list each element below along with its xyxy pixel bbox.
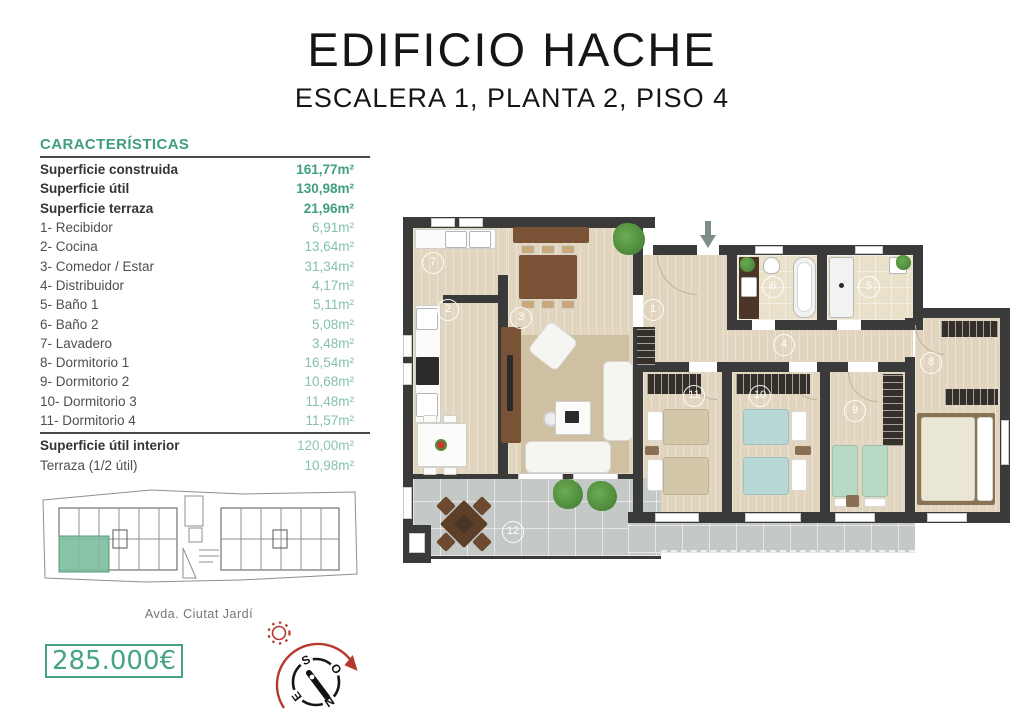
room-marker-11: 11 — [683, 385, 705, 407]
window — [431, 218, 455, 227]
characteristics-row: 6- Baño 25,08m² — [40, 314, 370, 333]
bath-sink — [741, 277, 757, 297]
brochure-page: EDIFICIO HACHE ESCALERA 1, PLANTA 2, PIS… — [0, 0, 1024, 723]
bookshelf — [945, 389, 998, 405]
row-label: 1- Recibidor — [40, 220, 113, 235]
window — [745, 513, 801, 522]
bed — [743, 409, 789, 445]
characteristics-row: 10- Dormitorio 311,48m² — [40, 392, 370, 411]
plant — [740, 257, 755, 272]
row-label: 4- Distribuidor — [40, 278, 124, 293]
chair — [443, 415, 457, 423]
window — [927, 513, 967, 522]
bathtub-inner — [797, 262, 812, 312]
row-value: 5,08m² — [312, 317, 370, 332]
header: EDIFICIO HACHE ESCALERA 1, PLANTA 2, PIS… — [0, 0, 1024, 114]
wall — [820, 372, 830, 522]
room-marker-8: 8 — [920, 352, 942, 374]
wall — [905, 318, 915, 325]
compass-drawing: S O N E — [262, 620, 362, 720]
wall — [722, 372, 732, 522]
row-value: 10,68m² — [304, 374, 370, 389]
window — [403, 363, 412, 385]
bed-pillow — [647, 411, 663, 441]
chair — [561, 245, 575, 254]
row-value: 11,57m² — [305, 413, 370, 428]
row-label: 6- Baño 2 — [40, 317, 99, 332]
row-value: 4,17m² — [312, 278, 370, 293]
window — [403, 487, 412, 519]
terrace-door — [573, 473, 618, 480]
chair — [423, 415, 437, 423]
room-marker-9: 9 — [844, 400, 866, 422]
washer — [445, 231, 467, 248]
row-label: Superficie construida — [40, 162, 178, 177]
chair — [541, 300, 555, 309]
washer — [469, 231, 491, 248]
plant — [587, 481, 617, 511]
wall — [775, 320, 837, 330]
terrace-door — [518, 473, 563, 480]
chair — [541, 245, 555, 254]
corridor-floor — [727, 330, 913, 362]
characteristics-row: Superficie útil interior120,00m² — [40, 436, 370, 455]
row-value: 11,48m² — [305, 394, 370, 409]
room-marker-4: 4 — [773, 334, 795, 356]
fruit-bowl — [435, 439, 447, 451]
row-label: Superficie útil interior — [40, 438, 180, 453]
room-marker-5: 5 — [858, 276, 880, 298]
characteristics-rows: Superficie construida161,77m²Superficie … — [40, 160, 370, 430]
fridge — [416, 308, 438, 330]
bed-pillow — [791, 459, 807, 491]
row-label: 9- Dormitorio 2 — [40, 374, 129, 389]
wall — [1000, 308, 1010, 523]
characteristics-row: 3- Comedor / Estar31,34m² — [40, 256, 370, 275]
bed — [832, 445, 858, 497]
wall — [618, 474, 633, 479]
floor-plan: 123456789101112 — [403, 215, 1015, 567]
characteristics-row: Superficie construida161,77m² — [40, 160, 370, 179]
row-label: 5- Baño 1 — [40, 297, 99, 312]
terrace-edge-wall — [403, 556, 661, 559]
window — [1001, 420, 1009, 465]
laptop — [565, 411, 579, 423]
characteristics-row: 1- Recibidor6,91m² — [40, 218, 370, 237]
shower-drain — [839, 283, 844, 288]
bed — [663, 457, 709, 495]
row-value: 10,98m² — [304, 458, 370, 473]
characteristics-row: 9- Dormitorio 210,68m² — [40, 372, 370, 391]
row-label: Superficie útil — [40, 181, 129, 196]
row-value: 6,91m² — [312, 220, 370, 235]
wall — [653, 245, 697, 255]
row-value: 161,77m² — [296, 162, 370, 177]
window — [835, 513, 875, 522]
wardrobe — [736, 374, 810, 394]
compass: S O N E — [262, 620, 362, 720]
row-value: 130,98m² — [296, 181, 370, 196]
row-label: Terraza (1/2 útil) — [40, 458, 138, 473]
price-tag: 285.000€ — [45, 644, 183, 678]
characteristics-row: 7- Lavadero3,48m² — [40, 334, 370, 353]
chair — [521, 245, 535, 254]
toilet — [763, 257, 780, 274]
wall — [727, 320, 752, 330]
hall-bookshelf — [637, 327, 655, 365]
highlighted-unit — [59, 536, 109, 572]
chair — [423, 467, 437, 475]
room-marker-10: 10 — [749, 385, 771, 407]
wall — [913, 308, 1010, 318]
double-bed — [921, 417, 975, 501]
entrance-arrowhead-icon — [700, 235, 716, 248]
row-label: 11- Dormitorio 4 — [40, 413, 136, 428]
sun-rays-icon — [269, 623, 290, 644]
nightstand — [846, 495, 859, 507]
characteristics-row: Superficie útil130,98m² — [40, 179, 370, 198]
page-subtitle: ESCALERA 1, PLANTA 2, PISO 4 — [0, 83, 1024, 114]
characteristics-row: 4- Distribuidor4,17m² — [40, 276, 370, 295]
characteristics-heading: CARACTERÍSTICAS — [40, 136, 370, 158]
nightstand — [795, 446, 811, 455]
wall — [817, 255, 827, 330]
window — [755, 246, 783, 254]
nightstand — [645, 446, 659, 455]
characteristics-row: 8- Dormitorio 116,54m² — [40, 353, 370, 372]
sun-icon — [273, 627, 286, 640]
kitchen-opening-floor — [498, 227, 508, 275]
row-value: 31,34m² — [304, 259, 370, 274]
room-marker-7: 7 — [422, 252, 444, 274]
row-value: 3,48m² — [312, 336, 370, 351]
sideboard — [513, 227, 589, 243]
chair — [561, 300, 575, 309]
bed — [663, 409, 709, 445]
characteristics-totals: Superficie útil interior120,00m²Terraza … — [40, 432, 370, 475]
plant — [896, 255, 911, 270]
kitchen-sink — [416, 393, 438, 417]
wall — [905, 357, 915, 522]
plant — [553, 479, 583, 509]
terrace-planter-inner — [409, 533, 425, 553]
street-label: Avda. Ciutat Jardí — [33, 607, 365, 621]
row-value: 120,00m² — [297, 438, 370, 453]
sofa — [525, 441, 611, 473]
bookshelf — [941, 321, 998, 337]
characteristics-row: Superficie terraza21,96m² — [40, 199, 370, 218]
row-label: 2- Cocina — [40, 239, 98, 254]
room-marker-3: 3 — [510, 307, 532, 329]
room-marker-1: 1 — [642, 299, 664, 321]
room-marker-6: 6 — [762, 276, 784, 298]
compass-pivot-icon — [310, 675, 315, 680]
wall — [817, 362, 848, 372]
dining-table — [519, 255, 577, 299]
bed-pillow — [791, 411, 807, 441]
chair — [443, 467, 457, 475]
bed — [743, 457, 789, 495]
window — [655, 513, 699, 522]
bed — [862, 445, 888, 497]
cooktop — [416, 357, 439, 385]
wardrobe — [883, 374, 903, 446]
wall — [719, 245, 923, 255]
sofa — [603, 361, 633, 441]
arc-arrowhead-icon — [343, 655, 362, 675]
price-amount: 285.000€ — [52, 646, 176, 676]
window — [459, 218, 483, 227]
row-value: 16,54m² — [304, 355, 370, 370]
characteristics-row: Terraza (1/2 útil)10,98m² — [40, 455, 370, 474]
wall — [717, 362, 789, 372]
row-value: 5,11m² — [313, 297, 370, 312]
characteristics-row: 11- Dormitorio 411,57m² — [40, 411, 370, 430]
room-marker-12: 12 — [502, 521, 524, 543]
window — [855, 246, 883, 254]
terrace-open-edge — [661, 549, 915, 552]
tv — [507, 355, 513, 411]
wall — [727, 255, 737, 330]
row-value: 13,64m² — [304, 239, 370, 254]
bed-pillow — [864, 498, 886, 507]
window — [403, 335, 412, 357]
row-label: 3- Comedor / Estar — [40, 259, 154, 274]
row-label: Superficie terraza — [40, 201, 153, 216]
row-label: 10- Dormitorio 3 — [40, 394, 137, 409]
site-plan-drawing — [33, 478, 365, 600]
bed-headboard — [977, 417, 993, 501]
room-marker-2: 2 — [437, 299, 459, 321]
page-title: EDIFICIO HACHE — [0, 22, 1024, 77]
row-value: 21,96m² — [304, 201, 370, 216]
row-label: 7- Lavadero — [40, 336, 112, 351]
characteristics-row: 2- Cocina13,64m² — [40, 237, 370, 256]
bed-pillow — [647, 459, 663, 491]
site-plan: Avda. Ciutat Jardí — [33, 478, 365, 621]
row-label: 8- Dormitorio 1 — [40, 355, 129, 370]
characteristics-panel: CARACTERÍSTICAS Superficie construida161… — [40, 136, 370, 475]
characteristics-row: 5- Baño 15,11m² — [40, 295, 370, 314]
plant — [613, 223, 645, 255]
